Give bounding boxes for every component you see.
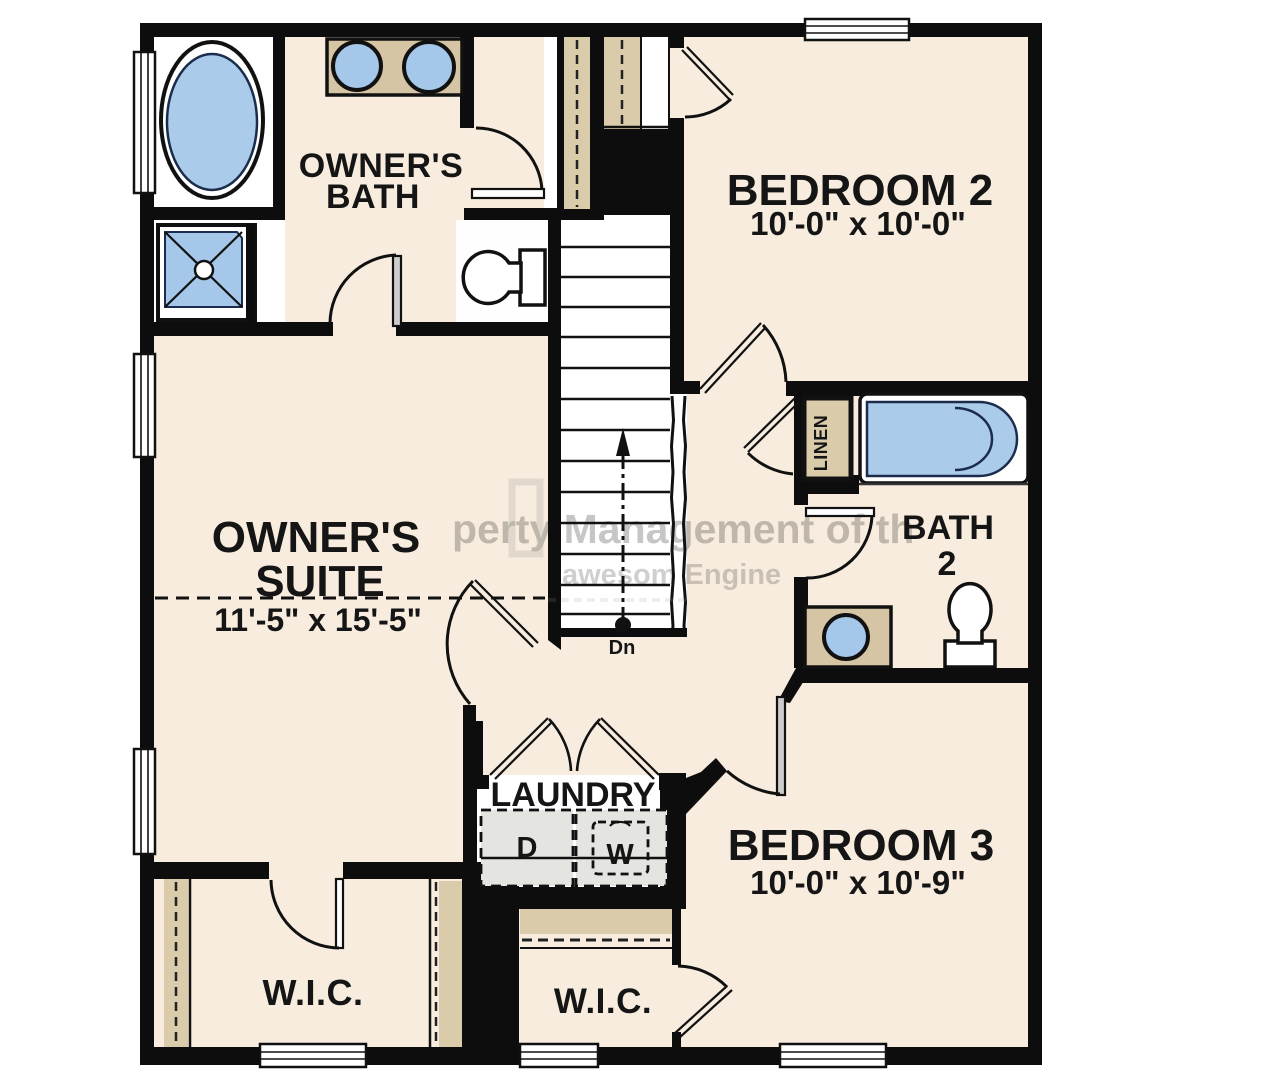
svg-text:W.I.C.: W.I.C. bbox=[263, 972, 364, 1013]
svg-text:D: D bbox=[517, 832, 538, 864]
svg-text:perty Management of th: perty Management of th bbox=[452, 506, 914, 552]
svg-text:OWNER'S: OWNER'S bbox=[212, 513, 420, 562]
svg-text:11'-5" x 15'-5": 11'-5" x 15'-5" bbox=[214, 602, 421, 638]
svg-text:10'-0" x 10'-0": 10'-0" x 10'-0" bbox=[750, 205, 966, 242]
svg-text:Dn: Dn bbox=[609, 637, 636, 659]
svg-text:2: 2 bbox=[938, 545, 957, 583]
svg-text:awesom Engine: awesom Engine bbox=[562, 559, 781, 591]
svg-text:10'-0" x 10'-9": 10'-0" x 10'-9" bbox=[750, 864, 966, 901]
svg-text:BEDROOM 3: BEDROOM 3 bbox=[728, 821, 994, 870]
svg-text:LAUNDRY: LAUNDRY bbox=[491, 776, 656, 814]
svg-text:SUITE: SUITE bbox=[255, 557, 385, 606]
svg-text:W.I.C.: W.I.C. bbox=[554, 982, 652, 1021]
svg-text:BATH: BATH bbox=[326, 178, 420, 216]
svg-text:W: W bbox=[606, 839, 634, 871]
svg-text:BATH: BATH bbox=[902, 509, 994, 547]
svg-text:LINEN: LINEN bbox=[811, 415, 831, 472]
